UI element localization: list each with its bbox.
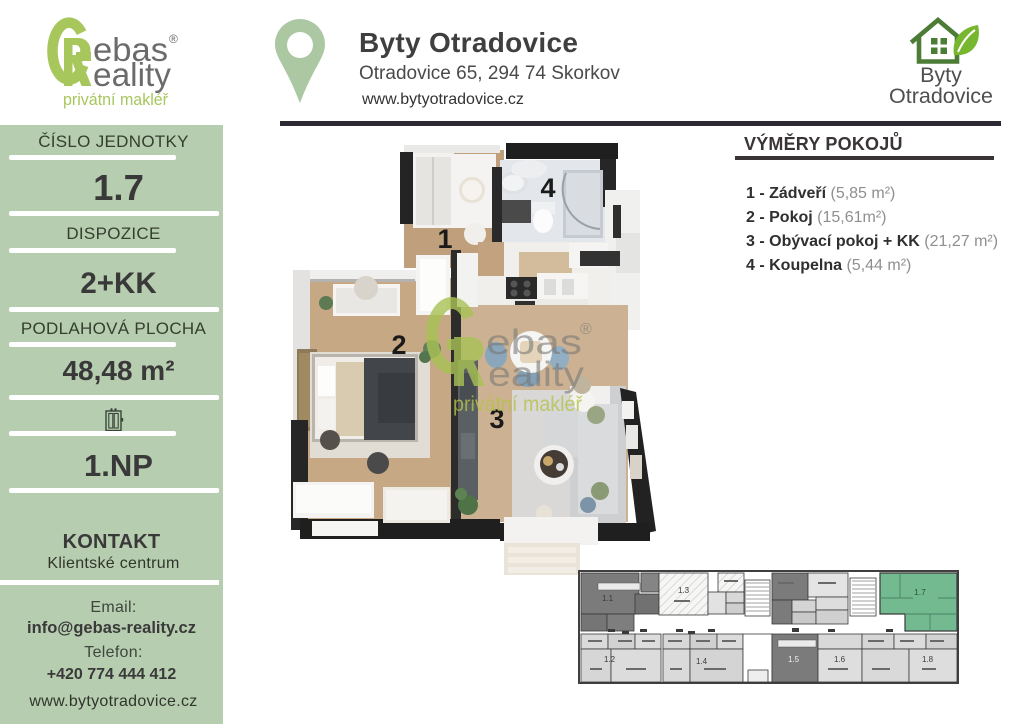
svg-text:1.1: 1.1 xyxy=(602,594,614,603)
svg-text:1.5: 1.5 xyxy=(788,655,800,664)
svg-text:1.6: 1.6 xyxy=(834,655,846,664)
svg-text:1.4: 1.4 xyxy=(696,657,708,666)
svg-text:®: ® xyxy=(580,321,592,338)
svg-text:privátní makléř: privátní makléř xyxy=(63,91,168,109)
svg-text:privátní makléř: privátní makléř xyxy=(453,393,583,416)
svg-text:1.8: 1.8 xyxy=(922,655,934,664)
svg-text:eality: eality xyxy=(488,355,585,394)
svg-text:1.2: 1.2 xyxy=(604,655,616,664)
svg-text:2: 2 xyxy=(391,330,406,360)
svg-text:eality: eality xyxy=(93,56,171,93)
svg-text:®: ® xyxy=(169,32,178,46)
svg-text:1.3: 1.3 xyxy=(678,586,690,595)
svg-text:4: 4 xyxy=(540,173,555,203)
svg-text:1.7: 1.7 xyxy=(914,587,926,597)
svg-text:1: 1 xyxy=(437,224,452,254)
